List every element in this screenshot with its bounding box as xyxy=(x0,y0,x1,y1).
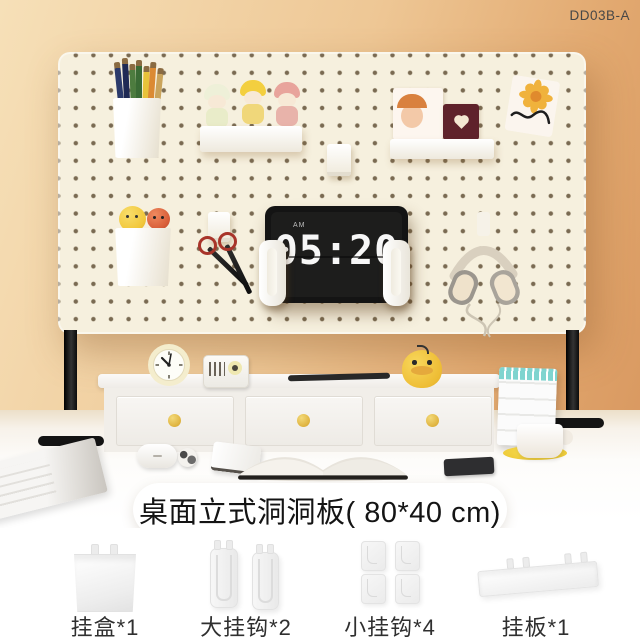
peg-tab xyxy=(214,540,221,550)
alarm-clock xyxy=(146,342,192,393)
open-book xyxy=(228,432,418,489)
scissors xyxy=(196,232,246,302)
calendar-spiral-band xyxy=(499,367,557,381)
figurine-shelf xyxy=(200,126,302,152)
accessory-hanging-box xyxy=(72,544,136,610)
drawer-knob xyxy=(426,414,439,427)
figurine-yellow xyxy=(238,80,268,126)
peg-tab xyxy=(226,540,233,550)
postcard-illustration xyxy=(393,88,443,140)
accessory-label-hanging-box: 挂盒*1 xyxy=(58,610,152,640)
accessory-small-hook xyxy=(395,541,420,571)
small-toy-ball xyxy=(178,448,197,467)
accessory-small-hook xyxy=(361,541,386,571)
toy-ball-red xyxy=(147,208,170,230)
tablet-holder-left xyxy=(259,240,286,306)
accessory-small-hook xyxy=(395,574,420,604)
headphones xyxy=(440,212,528,343)
storage-box xyxy=(114,228,172,286)
postcard-hair xyxy=(397,94,427,108)
daisy-card xyxy=(504,75,561,143)
product-code: DD03B-A xyxy=(569,8,630,23)
accessory-large-hook xyxy=(252,552,279,610)
phone xyxy=(444,457,495,477)
caption-text: 桌面立式洞洞板( 80*40 cm) xyxy=(139,489,501,531)
accessory-label-large-hooks: 大挂钩*2 xyxy=(190,610,302,640)
scissors-handle xyxy=(218,232,237,251)
peg-tab xyxy=(256,544,263,554)
tablet-holder-right xyxy=(383,240,410,306)
heart-shape xyxy=(455,116,468,129)
accessory-label-hanging-shelf: 挂板*1 xyxy=(486,610,586,640)
drawer-knob xyxy=(297,414,310,427)
accessory-label-small-hooks: 小挂钩*4 xyxy=(334,610,446,640)
radio-grille xyxy=(209,362,225,376)
postcard-shelf xyxy=(390,139,494,159)
radio-speaker xyxy=(228,361,242,375)
earbuds-case xyxy=(137,444,177,468)
peg-hook-middle xyxy=(327,144,351,176)
flip-clock-split-line xyxy=(289,256,383,258)
accessory-small-hook xyxy=(361,574,386,604)
scissors-handle xyxy=(198,236,217,255)
accessory-large-hook xyxy=(210,548,238,608)
peg-tab xyxy=(267,544,274,554)
pencil xyxy=(136,60,142,104)
duck-figurine xyxy=(402,344,442,388)
postcard-maroon xyxy=(443,104,479,140)
drawer-knob xyxy=(168,414,181,427)
pencil-cup xyxy=(112,98,162,158)
figurine-cream xyxy=(202,84,232,130)
product-photo-stage: DD03B-A xyxy=(0,0,640,640)
figurine-pink xyxy=(272,82,302,128)
retro-radio xyxy=(203,355,249,388)
white-mug xyxy=(517,424,563,458)
